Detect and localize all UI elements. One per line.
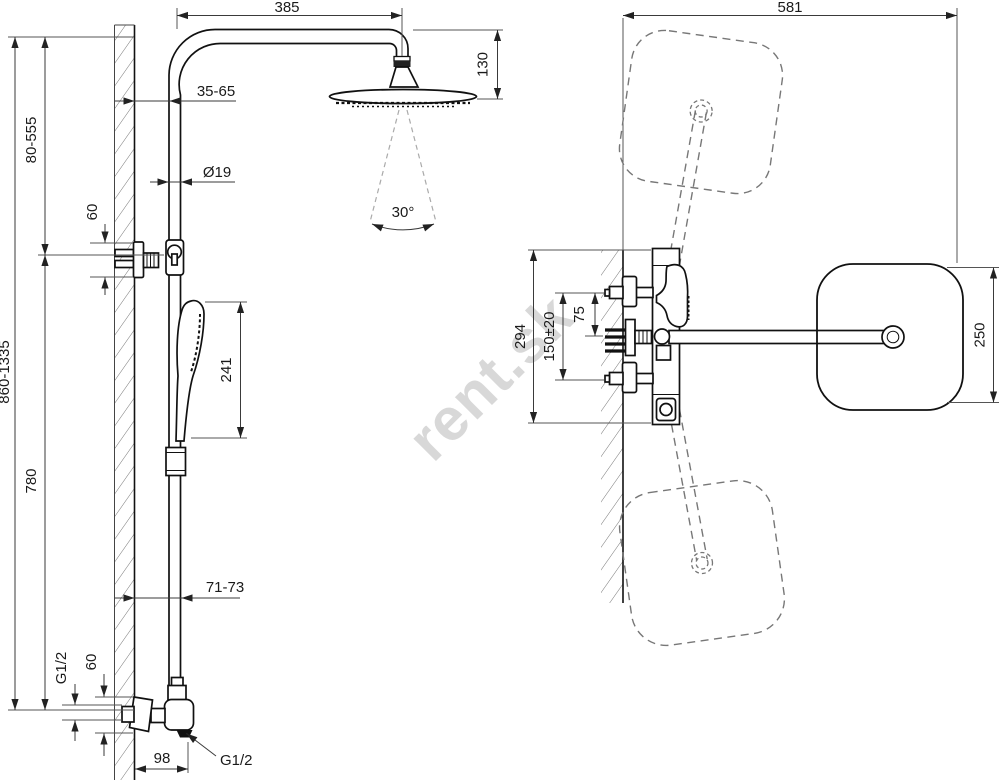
dim-valve-assembly-height: 294 [512,324,529,349]
dim-bracket-height: 60 [84,204,101,221]
head-cone-connector [390,67,418,87]
right-view: 581 294 150±20 75 250 [512,0,999,650]
valve-adapter [168,686,186,701]
dim-valve-body-height: 60 [83,654,100,671]
dim-supply-spacing: 150±20 [541,312,558,362]
dim-head-drop: 130 [475,52,492,77]
hand-shower [176,301,204,441]
head-plate [330,90,477,104]
dim-pipe-diameter: Ø19 [203,164,231,181]
dim-hand-shower-length: 241 [218,357,235,382]
watermark-text: rent.sk [395,282,586,473]
dim-wall-to-pipe-bottom: 71-73 [206,579,244,596]
bracket-keyhole [172,254,177,265]
spray-cone: 30° [370,110,436,230]
left-dimensions: 385 130 35-65 Ø19 60 80-555 860-1335 780… [0,0,498,769]
dim-spray-angle: 30° [392,204,415,221]
wall-right [601,18,623,603]
dim-wall-to-pipe-top: 35-65 [197,83,235,100]
dim-rail-length: 780 [23,468,40,493]
technical-drawing-page: rent.sk 30° [0,0,1000,782]
dim-inlet-thread: G1/2 [53,652,70,685]
arm-swing-down-position [615,343,789,650]
head-swivel-band [394,61,411,67]
left-view: 30° [0,0,503,780]
head-ball-joint-outer [882,326,904,348]
shower-arm-side [669,331,884,344]
bracket-pin-bottom [115,261,134,268]
wall-left [115,25,135,780]
valve-wall-connector [151,709,165,723]
rail-slider [166,448,186,476]
hose-outlet-stub [657,346,671,361]
valve-body [165,700,194,731]
right-extension-lines [528,8,999,423]
right-dimensions: 581 294 150±20 75 250 [512,0,994,423]
dim-overall-depth: 581 [777,0,802,16]
dim-supply-to-arm: 75 [571,306,588,323]
head-swivel-ring [394,57,410,62]
arm-pivot [655,329,670,344]
shower-system-drawing: rent.sk 30° [0,0,1000,782]
dim-outlet-thread: G1/2 [220,752,253,769]
bracket-wall-plate [134,242,144,278]
dim-overall-height: 860-1335 [0,340,13,403]
dim-head-width: 250 [972,322,989,347]
overhead-shower-head [330,57,477,107]
dim-valve-depth: 98 [154,750,171,767]
valve-foot-screw [660,404,672,416]
dim-upper-adjust-range: 80-555 [23,117,40,164]
valve-inlet-stub [122,707,134,723]
dim-arm-reach: 385 [274,0,299,16]
shower-valve-side [605,249,884,425]
